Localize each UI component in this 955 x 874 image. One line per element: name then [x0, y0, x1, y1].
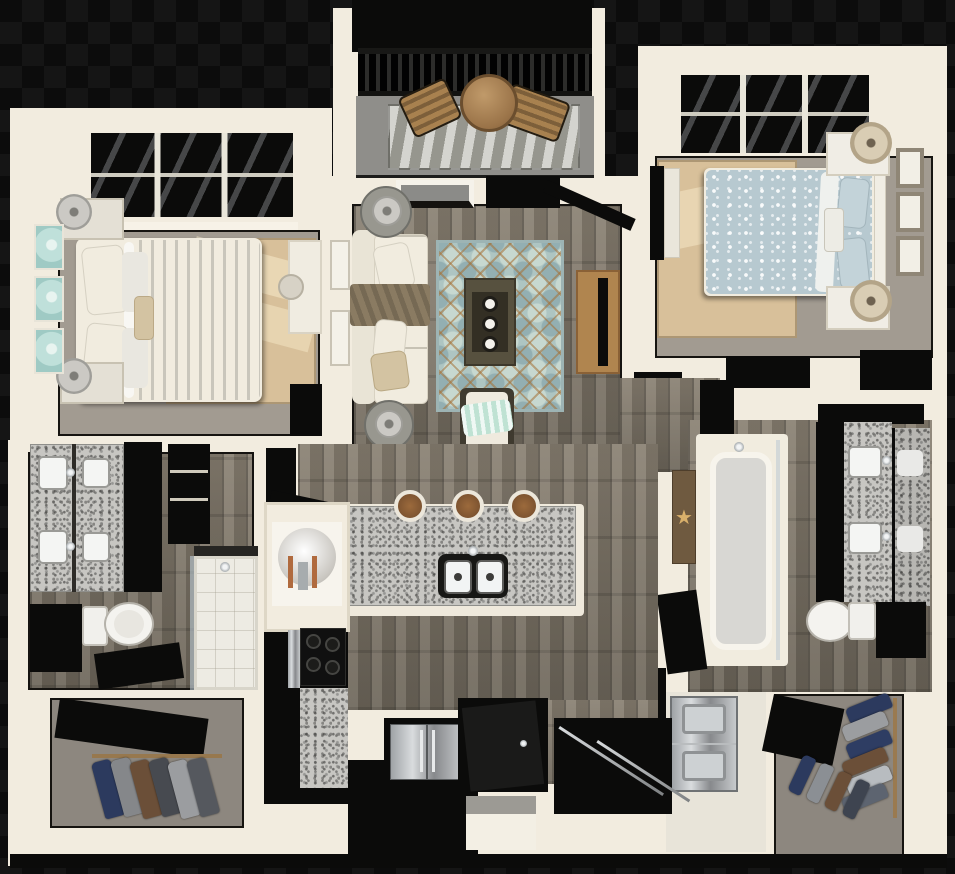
bedroom2-tv: [650, 166, 664, 260]
entry-niche-shadow: [466, 796, 536, 814]
bottom-wall-shadow: [10, 854, 947, 868]
coat-closet-doors: [554, 718, 672, 814]
bathroom2-faucet-2: [882, 532, 891, 541]
bathtub: [710, 452, 772, 650]
starfish-icon: ★: [675, 505, 693, 529]
bedroom2-closet-opening: [860, 350, 932, 390]
bathroom1-faucet-2: [66, 542, 75, 551]
bedroom2-lumbar-pillow: [824, 208, 844, 252]
bathroom2-toilet-tank: [848, 602, 876, 640]
starfish-wall-decor: ★: [672, 470, 696, 564]
island-sink-drain-right: [486, 573, 494, 581]
bathroom1-sink-1: [38, 456, 68, 490]
bedroom1-wall-canvas-3: [34, 328, 64, 374]
linen-shelf-1: [170, 470, 208, 473]
bathroom1-faucet-1: [66, 468, 75, 477]
burner-1: [306, 634, 321, 649]
bathroom2-sink-reflection-1: [897, 450, 923, 476]
dryer-door: [682, 704, 726, 734]
water-heater-pipe-1: [288, 556, 293, 588]
linen-shelf-2: [170, 498, 208, 501]
refrigerator-door-split: [426, 724, 428, 780]
balcony-bistro-table: [460, 74, 518, 132]
closet2-rod: [893, 698, 897, 818]
bathroom2-toilet-bowl: [806, 600, 854, 642]
tv-screen: [598, 278, 608, 366]
sofa-pillow-tan: [370, 350, 411, 393]
bedroom2-lamp-top: [850, 122, 892, 164]
bathroom1-sink-reflection-2: [82, 532, 110, 562]
bedroom2-wall-frame-2: [896, 192, 924, 232]
bathroom1-linen-shelves: [168, 444, 210, 544]
bathroom2-sink-2: [848, 522, 882, 554]
bedroom2-lamp-bottom: [850, 280, 892, 322]
bathroom1-sink-2: [38, 530, 68, 564]
bathroom1-toilet-seat: [114, 610, 144, 638]
bathroom1-mirror-edge: [72, 444, 76, 592]
island-faucet: [468, 546, 478, 556]
bathroom2-faucet-1: [882, 456, 891, 465]
living-wall-frame-2: [330, 310, 350, 366]
bedroom1-wall-canvas-1: [34, 224, 64, 270]
bathroom1-dark-cabinet: [30, 604, 82, 672]
tub-glass-panel: [776, 440, 780, 660]
bedroom1-accent-pillow: [134, 296, 154, 340]
bedroom2-wall-frame-3: [896, 236, 924, 276]
bathroom1-sink-reflection-1: [82, 458, 110, 488]
bar-stool-1: [394, 490, 426, 522]
shower-glass-door: [190, 556, 194, 690]
bathroom1-vanity-cabinet: [124, 442, 162, 592]
bathroom2-vanity-cabinet: [816, 422, 844, 602]
water-heater-flue: [298, 562, 308, 590]
refrigerator-handle-right: [432, 730, 435, 772]
shower-pan: [194, 556, 258, 690]
bedroom2-wall-frame-1: [896, 148, 924, 188]
candle-1: [482, 296, 498, 312]
island-sink-drain-left: [454, 573, 462, 581]
bedroom1-wall-canvas-2: [34, 276, 64, 322]
washer-door: [682, 751, 726, 781]
bar-stool-3: [508, 490, 540, 522]
bathroom2-upper-cabinet: [818, 404, 924, 424]
refrigerator-handle-left: [420, 730, 423, 772]
bathroom2-sink-1: [848, 446, 882, 478]
burner-4: [325, 660, 340, 675]
candle-2: [482, 316, 498, 332]
bar-stool-2: [452, 490, 484, 522]
living-wall-frame-1: [330, 240, 350, 290]
shower-head-1: [220, 562, 230, 572]
bedroom2-dresser: [664, 168, 680, 258]
candle-3: [482, 336, 498, 352]
side-table-lamp-bottom: [375, 410, 403, 438]
bathroom2-sink-reflection-2: [897, 526, 923, 552]
bedroom2-door-opening: [726, 356, 810, 388]
bathroom2-dark-cabinet: [876, 602, 926, 658]
oven-handle: [288, 630, 300, 688]
kitchen-counter-granite: [300, 688, 348, 788]
water-heater-pipe-2: [312, 556, 317, 588]
side-table-lamp-top: [372, 196, 402, 226]
shower-head-2: [734, 442, 744, 452]
entry-door-leaf: [462, 700, 544, 791]
bedroom2-headboard: [874, 166, 886, 298]
entry-door-knob: [520, 740, 527, 747]
balcony-roof-overhang: [352, 0, 592, 52]
burner-3: [306, 657, 321, 672]
bedroom1-desk-chair: [278, 274, 304, 300]
burner-2: [325, 637, 340, 652]
bedroom1-door-opening: [290, 384, 322, 436]
floorplan-canvas: ★: [0, 0, 955, 874]
